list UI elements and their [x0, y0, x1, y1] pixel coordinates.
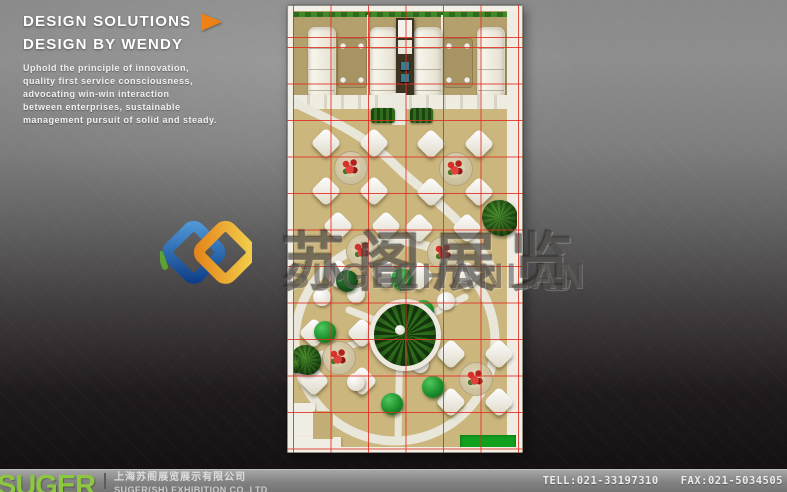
description-text: Uphold the principle of innovation, qual…: [23, 62, 285, 127]
telephone-number: TELL:021-33197310: [543, 475, 659, 487]
company-name-chinese: 上海苏阁展览展示有限公司: [114, 472, 268, 483]
white-stool: [347, 373, 365, 391]
chair: [483, 338, 514, 369]
fax-number: FAX:021-5034505: [681, 475, 783, 487]
green-stool: [381, 393, 403, 415]
flower-centerpiece: [340, 157, 360, 177]
dining-set: [417, 130, 493, 206]
flower-centerpiece: [445, 158, 465, 178]
counter-inset: [313, 411, 333, 439]
chair: [435, 338, 466, 369]
chair: [358, 127, 389, 158]
chair: [463, 128, 494, 159]
green-stool: [422, 376, 444, 398]
title-line-2: DESIGN BY WENDY: [23, 33, 285, 56]
title-row: DESIGN SOLUTIONS: [23, 10, 285, 33]
green-carpet-block: [460, 435, 516, 447]
brand-logo-text: SUGER: [0, 471, 95, 492]
header-block: DESIGN SOLUTIONS DESIGN BY WENDY Uphold …: [23, 10, 285, 127]
watermark-pinyin-text: SUGEZHANLAN: [286, 257, 587, 297]
footer-bar: SUGER 上海苏阁展览展示有限公司 SUGER(SH) EXHIBITION …: [0, 469, 787, 492]
arrow-right-icon: [201, 13, 222, 31]
contact-info: TELL:021-33197310 FAX:021-5034505: [543, 475, 787, 487]
chair: [310, 127, 341, 158]
chair: [415, 128, 446, 159]
title-line-1: DESIGN SOLUTIONS: [23, 10, 191, 33]
chair: [483, 386, 514, 417]
design-presentation-canvas: DESIGN SOLUTIONS DESIGN BY WENDY Uphold …: [0, 0, 787, 492]
chair: [358, 175, 389, 206]
footer-separator: [104, 473, 106, 489]
wall-planter: [293, 355, 299, 373]
dining-set: [312, 129, 388, 205]
dining-set: [437, 340, 513, 416]
flower-centerpiece: [328, 347, 348, 367]
company-name-english: SUGER(SH) EXHIBITION CO.,LTD: [114, 485, 268, 492]
suge-logo-watermark: [160, 205, 252, 307]
green-stool: [314, 321, 336, 343]
chair: [310, 175, 341, 206]
company-name-block: 上海苏阁展览展示有限公司 SUGER(SH) EXHIBITION CO.,LT…: [114, 472, 268, 492]
flower-centerpiece: [465, 368, 485, 388]
chair: [415, 176, 446, 207]
center-planter-tree: [369, 299, 441, 371]
